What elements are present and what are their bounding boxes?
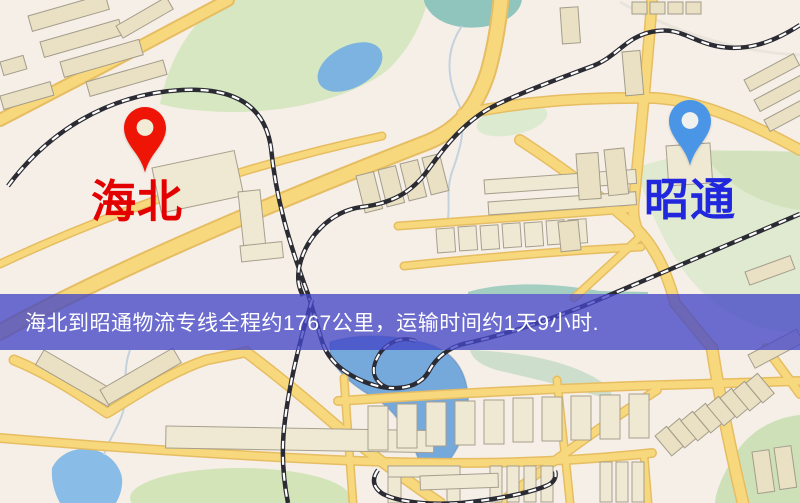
route-info-banner: 海北到昭通物流专线全程约1767公里，运输时间约1天9小时. <box>0 294 800 350</box>
pin-body <box>124 107 166 173</box>
red-pin-icon <box>122 106 168 174</box>
destination-pin[interactable] <box>667 99 713 167</box>
route-info-text: 海北到昭通物流专线全程约1767公里，运输时间约1天9小时. <box>25 307 599 337</box>
pin-body <box>669 100 711 166</box>
origin-label: 海北 <box>91 179 183 224</box>
origin-pin[interactable] <box>122 106 168 174</box>
destination-label: 昭通 <box>644 177 736 222</box>
map-canvas[interactable]: 海北到昭通物流专线全程约1767公里，运输时间约1天9小时. 海北 昭通 <box>0 0 800 503</box>
map-background <box>0 0 800 503</box>
pin-hole <box>682 112 699 129</box>
pin-hole <box>137 119 154 136</box>
blue-pin-icon <box>667 99 713 167</box>
